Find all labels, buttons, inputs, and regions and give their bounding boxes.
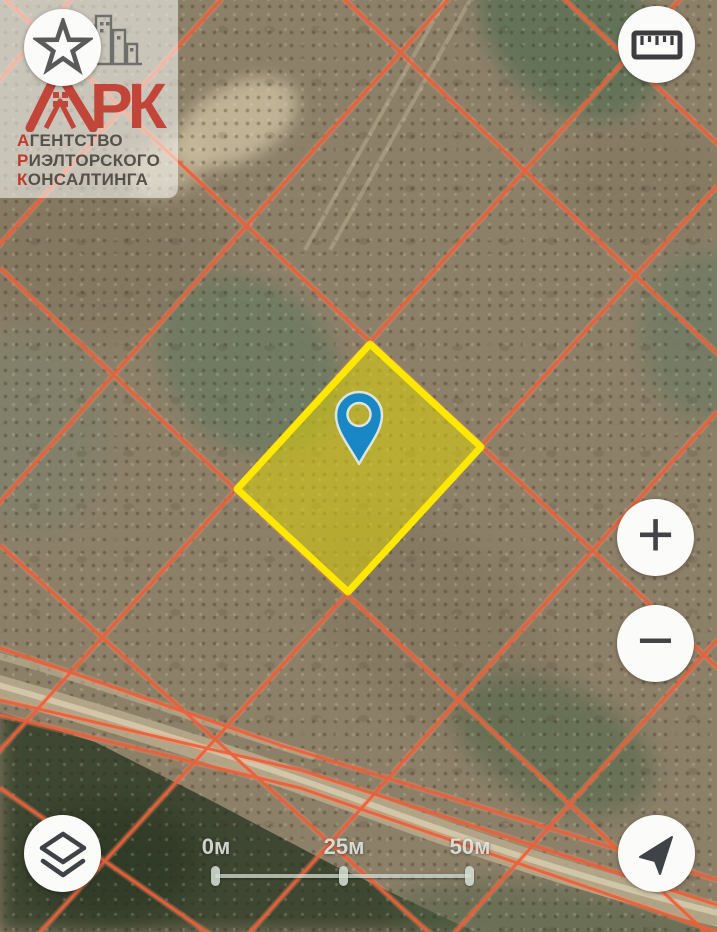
plus-icon: +	[637, 502, 674, 566]
agency-name: АГЕНТСТВО РИЭЛТОРСКОГО КОНСАЛТИНГА	[17, 131, 160, 190]
layers-icon	[35, 824, 91, 884]
layers-button[interactable]	[24, 815, 101, 892]
buildings-windows	[100, 22, 134, 52]
locate-button[interactable]	[618, 815, 695, 892]
selected-parcel[interactable]	[237, 344, 481, 592]
agency-name-line: КОНСАЛТИНГА	[17, 170, 160, 190]
zoom-in-button[interactable]: +	[617, 499, 694, 576]
measure-button[interactable]	[618, 6, 695, 83]
dirt-road	[0, 655, 717, 916]
map-app: РК АГЕНТСТВО РИЭЛТОРСКОГО КОНСАЛТИНГА + …	[0, 0, 717, 932]
agency-name-line: АГЕНТСТВО	[17, 131, 160, 151]
zoom-out-button[interactable]: −	[617, 605, 694, 682]
ruler-icon	[629, 23, 685, 67]
agency-name-line: РИЭЛТОРСКОГО	[17, 151, 160, 171]
favorites-button[interactable]	[24, 9, 101, 86]
minus-icon: −	[637, 608, 674, 672]
navigation-arrow-icon	[629, 826, 685, 882]
star-icon	[33, 18, 93, 78]
logo-monogram: РК	[90, 70, 168, 132]
